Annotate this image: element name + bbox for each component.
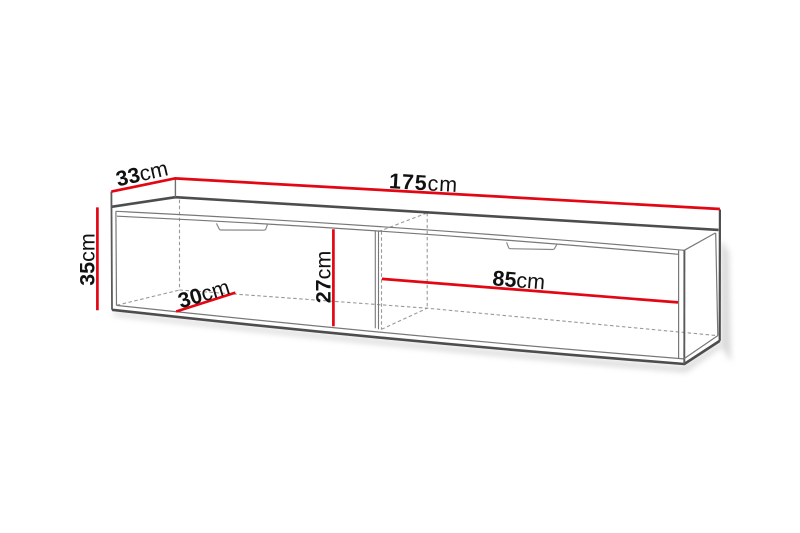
svg-text:27cm: 27cm bbox=[312, 251, 336, 304]
svg-text:35cm: 35cm bbox=[76, 233, 100, 286]
svg-text:85cm: 85cm bbox=[492, 266, 546, 294]
svg-text:175cm: 175cm bbox=[388, 169, 458, 197]
